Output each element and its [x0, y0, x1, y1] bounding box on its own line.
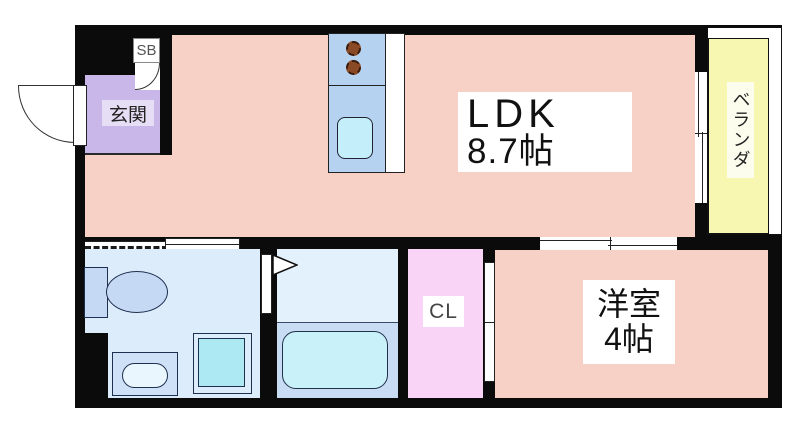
ldk-size: 8.7帖 [467, 134, 632, 169]
vanity-sink-icon [112, 352, 178, 396]
window-pane-line [608, 245, 677, 246]
sliding-door-track-icon [85, 241, 168, 249]
door-panel-line [485, 322, 494, 323]
window-pane-line [702, 132, 703, 203]
veranda-label: ベランダ [727, 82, 754, 178]
washing-machine-pan-icon [193, 333, 252, 394]
window-icon [695, 72, 707, 203]
window-pane-line [540, 240, 612, 241]
toilet-icon [84, 267, 108, 318]
window-icon [540, 237, 677, 250]
ldk-name: LDK [467, 94, 632, 134]
toilet-icon [106, 271, 168, 313]
counter-divider-line [329, 85, 386, 86]
western-room-label: 洋室 4帖 [583, 280, 675, 364]
stove-burner-icon [346, 60, 361, 75]
western-room-size: 4帖 [604, 322, 654, 357]
western-room-name: 洋室 [597, 287, 661, 322]
kitchen-sink-icon [337, 117, 373, 159]
bathtub-icon [282, 331, 388, 389]
shoe-box-door [135, 63, 160, 90]
floor-plan: 玄関 SB LDK 8.7帖 ベランダ [0, 0, 800, 434]
wall-right-of-genkan [160, 25, 172, 155]
washing-machine-pan-inner [198, 338, 245, 387]
door-swing-arc-icon [18, 86, 75, 143]
ldk-label: LDK 8.7帖 [458, 92, 632, 172]
sink-basin-icon [122, 363, 168, 388]
shoe-box-label: SB [133, 38, 160, 63]
door-direction-triangle-icon [272, 254, 298, 276]
bathroom-door [261, 254, 272, 314]
door-panel-line [166, 244, 239, 245]
closet-label: CL [423, 296, 464, 327]
genkan-label: 玄関 [102, 100, 154, 126]
window-pane-line [698, 72, 699, 137]
entrance-door-leaf [73, 85, 87, 146]
kitchen-unit [328, 33, 405, 173]
window-mullion-tick [610, 237, 611, 250]
wall-notch [75, 333, 108, 408]
window-mullion-tick [695, 133, 707, 134]
stove-burner-icon [346, 41, 361, 56]
door-swing-arc-icon [135, 63, 160, 90]
closet-door [484, 262, 495, 382]
